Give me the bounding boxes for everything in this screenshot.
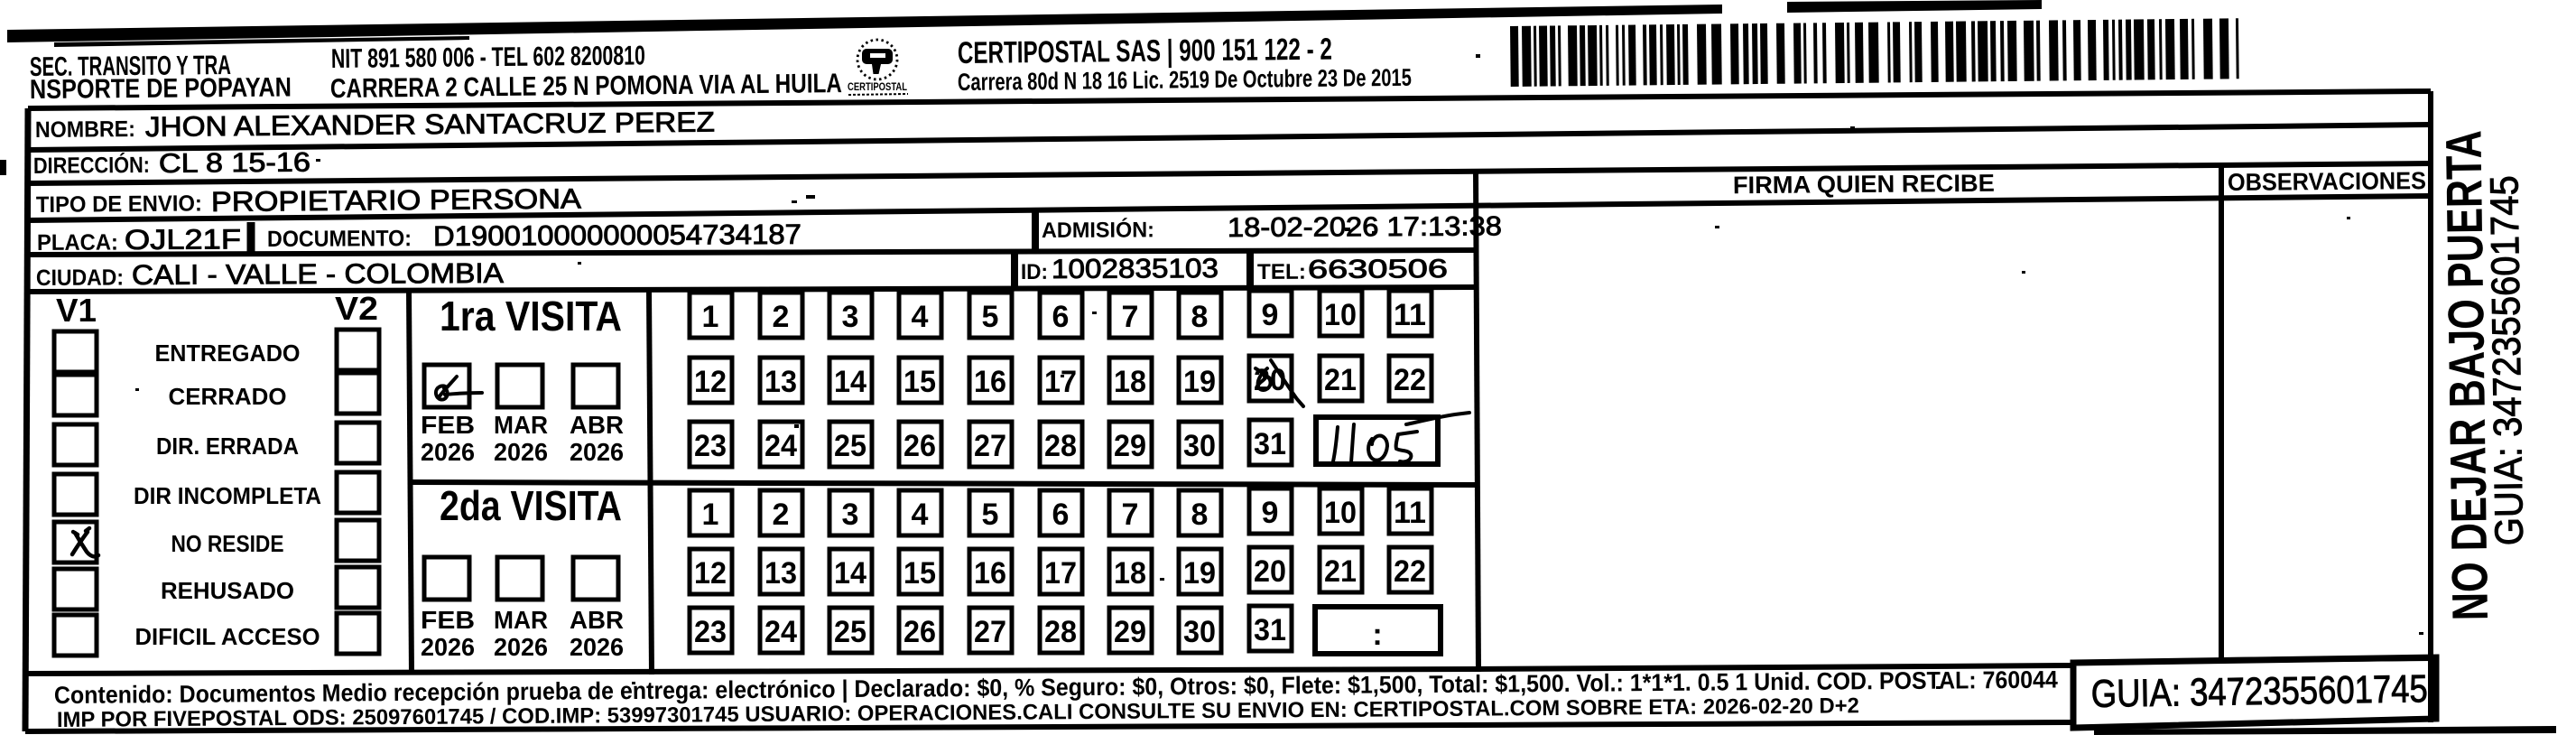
svg-text:21: 21 [1324, 554, 1357, 589]
svg-text:10: 10 [1324, 496, 1357, 530]
svg-text:DIR. ERRADA: DIR. ERRADA [156, 433, 299, 460]
svg-text:7: 7 [1122, 498, 1139, 532]
svg-text:24: 24 [764, 615, 797, 649]
svg-text:24: 24 [764, 429, 797, 463]
svg-text:CL 8 15-16: CL 8 15-16 [159, 148, 310, 179]
svg-text:3: 3 [842, 498, 859, 532]
svg-text:REHUSADO: REHUSADO [161, 577, 294, 604]
svg-text:2026: 2026 [570, 633, 624, 661]
svg-text:CARRERA 2 CALLE 25 N POMONA VI: CARRERA 2 CALLE 25 N POMONA VIA AL HUILA [330, 69, 842, 104]
svg-text:6630506: 6630506 [1308, 255, 1448, 284]
svg-text:OJL21F: OJL21F [125, 223, 241, 256]
svg-text:4: 4 [912, 300, 929, 334]
svg-text:9: 9 [1262, 298, 1279, 332]
svg-text:17: 17 [1044, 556, 1077, 591]
svg-text:13: 13 [764, 556, 797, 591]
svg-text:Carrera 80d N 18 16 Lic. 2519: Carrera 80d N 18 16 Lic. 2519 De Octubre… [958, 64, 1412, 96]
svg-text:DOCUMENTO:: DOCUMENTO: [267, 226, 412, 252]
svg-text:19: 19 [1183, 365, 1216, 399]
svg-text:7: 7 [1122, 300, 1139, 334]
svg-text:NSPORTE DE POPAYAN: NSPORTE DE POPAYAN [30, 72, 292, 105]
svg-text:V2: V2 [335, 290, 378, 327]
svg-text:6: 6 [1052, 300, 1070, 334]
svg-text:GUIA: 3472355601745: GUIA: 3472355601745 [2090, 667, 2428, 716]
svg-text:TIPO DE ENVIO:: TIPO DE ENVIO: [36, 191, 202, 218]
svg-text:MAR: MAR [494, 411, 548, 439]
svg-text:D190010000000054734187: D190010000000054734187 [433, 219, 802, 252]
svg-text:FEB: FEB [421, 411, 475, 439]
svg-text:26: 26 [903, 615, 936, 649]
svg-text:19: 19 [1183, 556, 1216, 591]
svg-text:2026: 2026 [494, 438, 548, 466]
svg-text:11: 11 [1394, 496, 1426, 530]
svg-text:2026: 2026 [570, 438, 624, 466]
svg-text:30: 30 [1183, 615, 1216, 649]
svg-text:18-02-2026 17:13:38: 18-02-2026 17:13:38 [1228, 211, 1502, 243]
svg-text:26: 26 [903, 429, 936, 463]
svg-text:15: 15 [903, 556, 936, 591]
svg-text:18: 18 [1114, 556, 1146, 591]
svg-text:28: 28 [1044, 429, 1077, 463]
svg-text:2: 2 [773, 300, 790, 334]
svg-text:31: 31 [1254, 427, 1286, 461]
svg-text:25: 25 [834, 615, 866, 649]
svg-text:CALI - VALLE - COLOMBIA: CALI - VALLE - COLOMBIA [132, 257, 505, 291]
svg-text:1ra VISITA: 1ra VISITA [440, 293, 622, 340]
svg-text:DIRECCIÓN:: DIRECCIÓN: [33, 151, 150, 179]
svg-text:11: 11 [1394, 298, 1426, 332]
svg-text:DIR INCOMPLETA: DIR INCOMPLETA [134, 482, 321, 509]
svg-text:NOMBRE:: NOMBRE: [35, 116, 135, 143]
svg-text:17: 17 [1044, 365, 1077, 399]
svg-text:OBSERVACIONES: OBSERVACIONES [2228, 167, 2426, 196]
svg-text:PLACA:: PLACA: [37, 230, 118, 256]
svg-text:27: 27 [974, 615, 1006, 649]
svg-text:29: 29 [1114, 615, 1146, 649]
svg-text:30: 30 [1183, 429, 1216, 463]
svg-text:JHON ALEXANDER SANTACRUZ PEREZ: JHON ALEXANDER SANTACRUZ PEREZ [145, 106, 715, 143]
svg-text:1002835103: 1002835103 [1052, 254, 1219, 284]
svg-text:21: 21 [1324, 363, 1357, 397]
svg-text:13: 13 [764, 365, 797, 399]
svg-text:22: 22 [1394, 554, 1426, 589]
svg-text:ENTREGADO: ENTREGADO [155, 340, 301, 367]
svg-text:25: 25 [834, 429, 866, 463]
svg-text:10: 10 [1324, 298, 1357, 332]
svg-text:8: 8 [1191, 300, 1209, 334]
svg-text:V1: V1 [56, 292, 97, 329]
svg-text:14: 14 [834, 556, 866, 591]
svg-text:20: 20 [1254, 554, 1286, 589]
svg-text:ABR: ABR [570, 606, 624, 634]
svg-text:FIRMA QUIEN RECIBE: FIRMA QUIEN RECIBE [1733, 170, 1995, 200]
svg-text:8: 8 [1191, 498, 1209, 532]
svg-text:2026: 2026 [421, 438, 475, 466]
svg-text:23: 23 [694, 429, 727, 463]
svg-text:FEB: FEB [421, 606, 475, 634]
svg-text:GUIA: 3472355601745: GUIA: 3472355601745 [2482, 175, 2532, 546]
svg-text:6: 6 [1052, 498, 1070, 532]
svg-text:12: 12 [694, 556, 727, 591]
svg-text:CIUDAD:: CIUDAD: [36, 265, 124, 291]
svg-text:PROPIETARIO PERSONA: PROPIETARIO PERSONA [211, 182, 582, 218]
svg-text:NO RESIDE: NO RESIDE [171, 530, 284, 557]
svg-text:CERTIPOSTAL: CERTIPOSTAL [848, 80, 907, 93]
svg-text:ADMISIÓN:: ADMISIÓN: [1042, 217, 1154, 243]
svg-text:2da VISITA: 2da VISITA [440, 482, 622, 529]
svg-text:9: 9 [1262, 496, 1279, 530]
svg-text:18: 18 [1114, 365, 1146, 399]
svg-text:1: 1 [702, 498, 719, 532]
svg-text:NIT 891 580 006 - TEL 602 8200: NIT 891 580 006 - TEL 602 8200810 [331, 41, 645, 74]
svg-text:14: 14 [834, 365, 866, 399]
svg-text:1: 1 [702, 300, 719, 334]
svg-text:DIFICIL ACCESO: DIFICIL ACCESO [135, 623, 320, 650]
svg-text:16: 16 [974, 556, 1006, 591]
svg-text:TEL:: TEL: [1257, 260, 1306, 284]
svg-text:23: 23 [694, 615, 727, 649]
svg-text:31: 31 [1254, 613, 1286, 647]
svg-text:29: 29 [1114, 429, 1146, 463]
svg-text:MAR: MAR [494, 606, 548, 634]
svg-text:27: 27 [974, 429, 1006, 463]
svg-text:22: 22 [1394, 363, 1426, 397]
svg-text:4: 4 [912, 498, 929, 532]
svg-text:2: 2 [773, 498, 790, 532]
svg-text:CERRADO: CERRADO [169, 383, 287, 410]
svg-text:12: 12 [694, 365, 727, 399]
svg-text:16: 16 [974, 365, 1006, 399]
svg-text:28: 28 [1044, 615, 1077, 649]
svg-text:ABR: ABR [570, 411, 624, 439]
svg-text:2026: 2026 [421, 633, 475, 661]
svg-text::: : [1372, 618, 1382, 652]
svg-text:5: 5 [982, 300, 999, 334]
svg-text:3: 3 [842, 300, 859, 334]
svg-text:15: 15 [903, 365, 936, 399]
svg-text:5: 5 [982, 498, 999, 532]
svg-text:2026: 2026 [494, 633, 548, 661]
svg-text:ID:: ID: [1021, 260, 1048, 284]
